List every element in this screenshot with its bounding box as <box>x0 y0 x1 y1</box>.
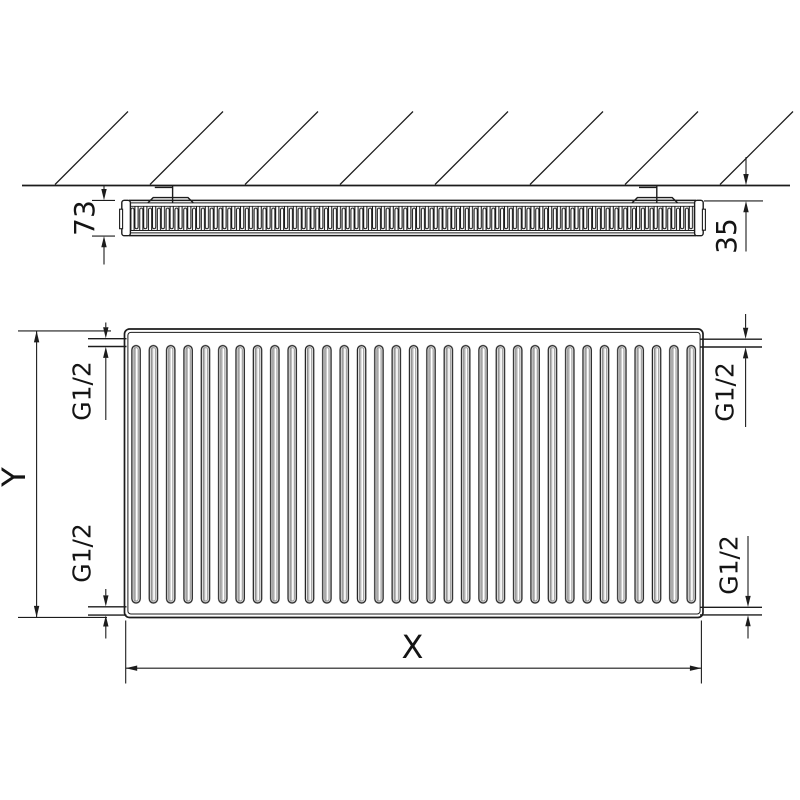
front-panel-fins <box>131 345 697 604</box>
radiator-technical-drawing: 73 35 Y X G1/2 G1/2 G1/2 G1/2 <box>0 0 800 800</box>
connection-stub-bottom-left <box>88 607 127 615</box>
end-cap-left <box>120 200 131 235</box>
connection-stub-top-left <box>88 339 127 347</box>
end-cap-right <box>695 200 706 235</box>
dimension-connection-bottom-right <box>745 536 750 639</box>
dimension-connection-top-left <box>103 323 108 421</box>
radiator-top-view <box>120 186 706 236</box>
dimension-connection-bottom-left <box>103 589 108 639</box>
connection-stub-top-right <box>700 339 762 347</box>
wall-hatching-lines <box>55 112 793 185</box>
height-dimension-label: Y <box>0 467 30 487</box>
radiator-front-view <box>88 329 762 618</box>
connection-size-label-bottom-right: G1/2 <box>716 535 741 595</box>
convector-corrugation <box>130 206 694 230</box>
connection-stub-bottom-right <box>700 607 762 615</box>
wall-distance-dimension-label: 35 <box>713 218 741 254</box>
width-dimension-label: X <box>402 631 424 663</box>
connection-size-label-top-left: G1/2 <box>70 361 95 421</box>
connection-size-label-top-right: G1/2 <box>712 362 737 422</box>
depth-dimension-label: 73 <box>71 200 99 236</box>
technical-drawing-svg <box>0 0 800 800</box>
connection-size-label-bottom-left: G1/2 <box>70 523 95 583</box>
dimension-connection-top-right <box>743 314 748 427</box>
wall-section <box>22 112 793 186</box>
